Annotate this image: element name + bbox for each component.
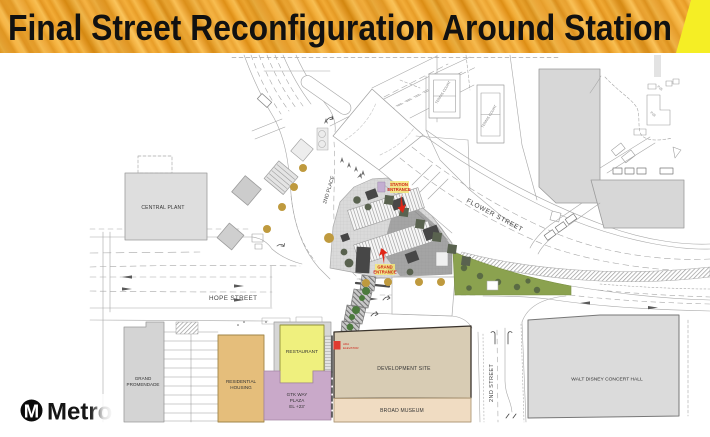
svg-text:BROAD MUSEUM: BROAD MUSEUM — [380, 408, 424, 414]
svg-text:GTK WAY: GTK WAY — [287, 392, 308, 397]
svg-text:HOPE STREET: HOPE STREET — [209, 295, 257, 302]
svg-text:DEVELOPMENT SITE: DEVELOPMENT SITE — [377, 366, 431, 372]
svg-text:ENTRANCE: ENTRANCE — [387, 187, 410, 192]
svg-text:ENTRANCE: ENTRANCE — [373, 270, 396, 275]
svg-text:GRAND: GRAND — [135, 376, 152, 381]
svg-text:Final Street Reconfiguration A: Final Street Reconfiguration Around Stat… — [8, 7, 672, 48]
svg-text:PROMENDADE: PROMENDADE — [127, 382, 160, 387]
svg-text:HOUSING: HOUSING — [230, 385, 252, 390]
svg-text:ELEVATOR: ELEVATOR — [343, 346, 359, 350]
svg-text:M: M — [24, 401, 39, 422]
svg-text:PLAZA: PLAZA — [290, 398, 305, 403]
svg-text:WALT DISNEY CONCERT HALL: WALT DISNEY CONCERT HALL — [571, 377, 643, 383]
svg-text:RESTAURANT: RESTAURANT — [286, 349, 318, 355]
svg-text:EL +23': EL +23' — [289, 404, 305, 409]
svg-text:CENTRAL PLANT: CENTRAL PLANT — [141, 205, 184, 211]
svg-text:2ND STREET: 2ND STREET — [489, 364, 495, 402]
svg-text:RESIDENTIAL: RESIDENTIAL — [226, 379, 257, 384]
